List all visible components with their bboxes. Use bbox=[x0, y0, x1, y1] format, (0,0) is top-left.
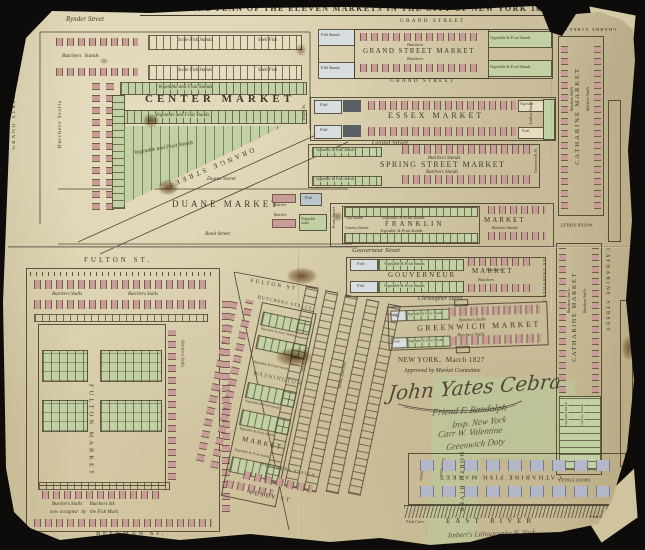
fulton-stall-row-2 bbox=[34, 300, 206, 309]
spring-market-name: SPRING STREET MARKET bbox=[380, 161, 505, 169]
grand-market-name: GRAND STREET MARKET bbox=[363, 48, 475, 55]
franklin-slip-stands: Slip Stands bbox=[346, 217, 363, 221]
fulton-stall-row-3 bbox=[42, 491, 162, 499]
sheet-join-vertical-left bbox=[298, 250, 299, 538]
essex-market-name: ESSEX MARKET bbox=[388, 112, 484, 120]
gouverneur-stall-row-bottom bbox=[468, 284, 532, 292]
center-butchers-stalls-label: Butchers Stalls bbox=[58, 100, 64, 148]
gouverneur-market-name: GOUVERNEUR bbox=[388, 272, 456, 279]
franklin-veg-strip-bottom bbox=[344, 233, 478, 243]
fulton-butchers-column-label: Butchers Stalls bbox=[180, 340, 185, 367]
stain bbox=[143, 114, 159, 127]
essex-dark-cell-1 bbox=[343, 100, 361, 112]
franklin-butchers-label: Butchers Stands bbox=[492, 226, 518, 230]
fish-cars-label-left: Fish Cars bbox=[406, 520, 424, 525]
duane-butcher-label-2: Butcher bbox=[274, 213, 287, 217]
margin-note-box-upper bbox=[608, 100, 621, 242]
catharine-lower-outline: Butchers Stalls CATHARINE MARKET Butcher… bbox=[556, 243, 602, 475]
catharine-vegetable-stands-label: Vegetable Stands bbox=[565, 402, 569, 426]
map-title: THE GROUND PLAN OF THE ELEVEN MARKETS IN… bbox=[140, 5, 560, 16]
franklin-stall-row-top bbox=[488, 206, 546, 214]
stain bbox=[158, 180, 178, 195]
duane-fish-label: Fish bbox=[305, 196, 312, 200]
fulton-green-grid-4 bbox=[100, 400, 162, 432]
center-veg-label-1: Vegetable and Fruit Stands bbox=[158, 85, 212, 90]
map-scan: THE GROUND PLAN OF THE ELEVEN MARKETS IN… bbox=[0, 0, 645, 550]
street-grand-upper: GRAND STREET bbox=[400, 19, 465, 25]
grand-butchers-bottom: Butchers bbox=[407, 57, 423, 62]
center-market-name: CENTER MARKET bbox=[145, 94, 295, 105]
gouverneur-veg-label-bottom: Vegetable & Fruit Stands bbox=[384, 284, 425, 288]
grand-fish-label-top: Fish Stands bbox=[321, 33, 340, 37]
catharine-fish-stall-row-top bbox=[420, 460, 612, 471]
duane-butcher-label-1: Butcher bbox=[274, 203, 287, 207]
fulton-awning-strip bbox=[30, 272, 214, 276]
street-duane: Duane Street bbox=[207, 177, 236, 183]
greenwich-stall-row-bottom bbox=[449, 333, 541, 345]
catharine-lower-butchers-right: Butchers Stalls bbox=[583, 289, 587, 313]
lithographer-imprint: Imbert's Lithography N. York bbox=[448, 528, 536, 539]
spring-stall-row-bottom bbox=[402, 175, 532, 184]
stain bbox=[276, 348, 312, 366]
note-approved: Approved by Market Committee bbox=[404, 368, 481, 374]
sheet-join-horizontal bbox=[8, 246, 638, 248]
catharine-country-stands-label: Country Stands bbox=[581, 404, 585, 426]
catharine-fish-market-name: CATHARINE FISH MARKET bbox=[438, 473, 562, 480]
essex-dark-cell-2 bbox=[343, 125, 361, 137]
essex-fish-cell-1 bbox=[314, 100, 342, 114]
center-veg-strip-2 bbox=[112, 110, 307, 124]
margin-note-box-lower bbox=[620, 300, 633, 467]
grand-veg-label-top: Vegetable & Fruit Stands bbox=[490, 36, 531, 40]
catharine-upper-stall-column-left bbox=[561, 41, 568, 209]
street-water: WATER STREET bbox=[560, 222, 593, 227]
paper-sheet: THE GROUND PLAN OF THE ELEVEN MARKETS IN… bbox=[0, 0, 645, 550]
franklin-market-word: MARKET bbox=[484, 217, 526, 224]
duane-butcher-box-2 bbox=[272, 219, 296, 228]
fulton-green-grid-3 bbox=[42, 400, 88, 432]
center-shell-fish-label: Shell Fish bbox=[258, 39, 277, 44]
street-beekman: BEEKMAN ST. bbox=[96, 531, 166, 538]
catharine-upper-outline: Butchers Stalls CATHARINE MARKET Butcher… bbox=[558, 36, 604, 216]
grand-fish-label-bottom: Fish Stands bbox=[321, 66, 340, 70]
catharine-lower-stall-column-left bbox=[559, 248, 566, 393]
franklin-market-name: FRANKLIN bbox=[385, 221, 444, 228]
fulton-stall-row-1 bbox=[34, 280, 206, 289]
fulton-green-grid-1 bbox=[42, 350, 88, 382]
center-veg-label-2: Vegetable and Fruit Stands bbox=[155, 113, 209, 118]
sheet-join-vertical-right bbox=[551, 22, 552, 312]
center-stall-row bbox=[56, 68, 138, 76]
street-rynder: Rynder Street bbox=[66, 16, 104, 23]
center-shell-fish-label-2: Shell Fish bbox=[258, 69, 277, 74]
catharine-fish-stall-row-bottom bbox=[420, 486, 612, 497]
street-essex: Essex St. bbox=[302, 104, 307, 121]
fulton-butchers-label-1: Butchers Stalls bbox=[52, 292, 82, 297]
fulton-right-stall-column bbox=[168, 330, 176, 480]
street-greenwich: Greenwich St. bbox=[534, 148, 539, 173]
center-fish-row-1 bbox=[148, 35, 302, 50]
essex-fish-cell-2 bbox=[314, 125, 342, 139]
greenwich-porch-top bbox=[454, 299, 468, 306]
essex-fruit-label: Fruit bbox=[522, 130, 529, 134]
street-reed: Reed Street bbox=[205, 232, 230, 238]
street-ludlow: Ludlow Street bbox=[529, 102, 533, 124]
gouverneur-butchers-bottom: Butchers bbox=[478, 278, 494, 283]
spring-veg-label-bottom: Vegetable & Fruit Stands bbox=[316, 178, 355, 182]
franklin-country-stands: Country Stands bbox=[345, 227, 369, 231]
street-grand-vertical: GRAND STREET bbox=[12, 88, 17, 149]
essex-fish-label-1: Fish bbox=[320, 103, 327, 107]
street-catharine-gouverneur: CATHARINE ST. bbox=[543, 256, 548, 302]
duane-veg-label: Vegetable stand bbox=[301, 218, 323, 226]
center-scale-fish-label: Scale Fish Stands bbox=[178, 39, 212, 44]
spring-veg-label-top: Vegetable & Fruit Stands bbox=[316, 149, 355, 153]
duane-market-name: DUANE MARKET bbox=[172, 200, 280, 209]
catharine-upper-name: CATHARINE MARKET bbox=[575, 67, 582, 165]
grand-veg-label-bottom: Vegetable & Fruit Stands bbox=[490, 65, 531, 69]
fulton-stall-row-4 bbox=[34, 519, 212, 527]
greenwich-porch-bottom bbox=[456, 346, 470, 353]
catharine-upper-stall-column-right bbox=[594, 41, 601, 209]
stain bbox=[333, 212, 342, 221]
catharine-lower-stall-column-right bbox=[592, 248, 599, 393]
center-fish-row-2 bbox=[148, 65, 302, 80]
fulton-number-strip-bottom bbox=[38, 482, 170, 490]
gouverneur-fish-label-top: Fish bbox=[357, 262, 364, 266]
street-catharine: CATHARINE STREET bbox=[604, 248, 610, 333]
catharine-upper-butchers-right: Butchers Stalls bbox=[586, 87, 590, 111]
stain bbox=[622, 336, 636, 360]
essex-stall-row-top bbox=[368, 101, 516, 110]
gouverneur-veg-label-top: Vegetable & Fruit Stands bbox=[384, 262, 425, 266]
street-fulton: FULTON ST. bbox=[84, 257, 152, 264]
center-butchers-stands-label: Butchers Stands bbox=[62, 54, 99, 60]
gouverneur-butchers-top: Butchers bbox=[486, 268, 502, 273]
spring-stall-row-top bbox=[402, 145, 532, 154]
street-cherry: CHERRY STREET bbox=[564, 26, 616, 31]
essex-veg-column bbox=[543, 99, 555, 140]
gouverneur-stall-row-top bbox=[468, 258, 532, 266]
stain bbox=[296, 44, 306, 56]
franklin-stall-row-bottom bbox=[488, 232, 546, 240]
stain bbox=[287, 268, 317, 284]
center-stall-column bbox=[92, 82, 100, 210]
fulton-number-strip-top bbox=[34, 314, 208, 322]
fulton-note-line-2: now occupied by the Fish Mark bbox=[50, 510, 118, 515]
grand-stall-row-top bbox=[360, 33, 478, 41]
fulton-note-line-1: Butchers Stalls Butchers Stk bbox=[52, 502, 115, 507]
center-stall-row bbox=[56, 38, 138, 46]
greenwich-market-outline: Fish Vegetable & Fruit Stands Butchers S… bbox=[387, 301, 548, 351]
grand-stall-row-bottom bbox=[360, 64, 478, 72]
gouverneur-fish-label-bottom: Fish bbox=[357, 284, 364, 288]
essex-fish-label-2: Fish bbox=[320, 128, 327, 132]
street-gouverneur: Gouverneur Street bbox=[352, 248, 400, 255]
catharine-lower-name: CATHARINE MARKET bbox=[572, 272, 579, 362]
essex-stall-row-bottom bbox=[368, 127, 516, 136]
center-veg-column bbox=[112, 95, 125, 209]
street-grand-lower: GRAND STREET bbox=[390, 79, 455, 85]
fulton-green-grid-2 bbox=[100, 350, 162, 382]
note-place-date: NEW YORK, March 1827 bbox=[398, 357, 485, 364]
center-scale-fish-label-2: Scale Fish Stands bbox=[178, 69, 212, 74]
fulton-butchers-label-2: Butchers Stalls bbox=[128, 292, 158, 297]
stain bbox=[100, 58, 108, 64]
greenwich-stall-row-top bbox=[448, 304, 540, 316]
label-east-river: EAST RIVER bbox=[446, 518, 536, 525]
